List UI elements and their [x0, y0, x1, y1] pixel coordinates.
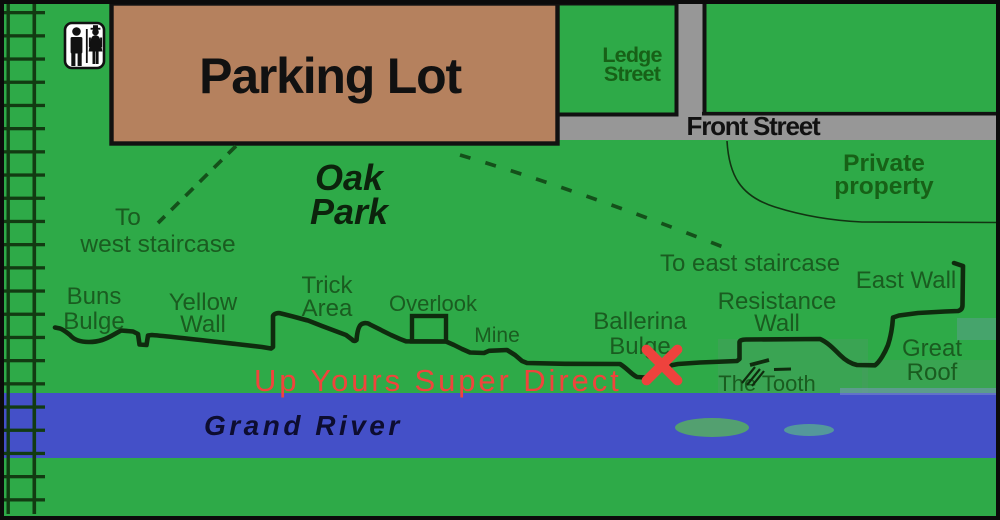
svg-text:property: property: [834, 173, 934, 200]
svg-text:Grand River: Grand River: [204, 410, 403, 441]
svg-text:To: To: [115, 204, 141, 231]
svg-text:Front Street: Front Street: [687, 111, 821, 141]
svg-text:Bulge: Bulge: [63, 308, 124, 335]
svg-text:Area: Area: [302, 295, 353, 322]
svg-text:Ballerina: Ballerina: [593, 308, 687, 335]
svg-text:To east staircase: To east staircase: [660, 250, 840, 277]
svg-text:Park: Park: [310, 191, 390, 232]
svg-text:Parking Lot: Parking Lot: [199, 48, 462, 104]
svg-text:Buns: Buns: [67, 283, 122, 310]
svg-text:Street: Street: [604, 62, 661, 86]
svg-text:Up Yours Super Direct: Up Yours Super Direct: [254, 363, 622, 398]
svg-text:Overlook: Overlook: [389, 291, 478, 316]
svg-text:west staircase: west staircase: [79, 231, 235, 258]
svg-text:Great: Great: [902, 335, 962, 362]
svg-text:Wall: Wall: [180, 311, 226, 338]
svg-text:Wall: Wall: [754, 310, 800, 337]
svg-text:The Tooth: The Tooth: [718, 371, 815, 396]
svg-text:Roof: Roof: [907, 359, 958, 386]
svg-text:Bulge: Bulge: [609, 333, 670, 360]
svg-text:East Wall: East Wall: [856, 267, 956, 294]
svg-text:Mine: Mine: [474, 324, 520, 347]
